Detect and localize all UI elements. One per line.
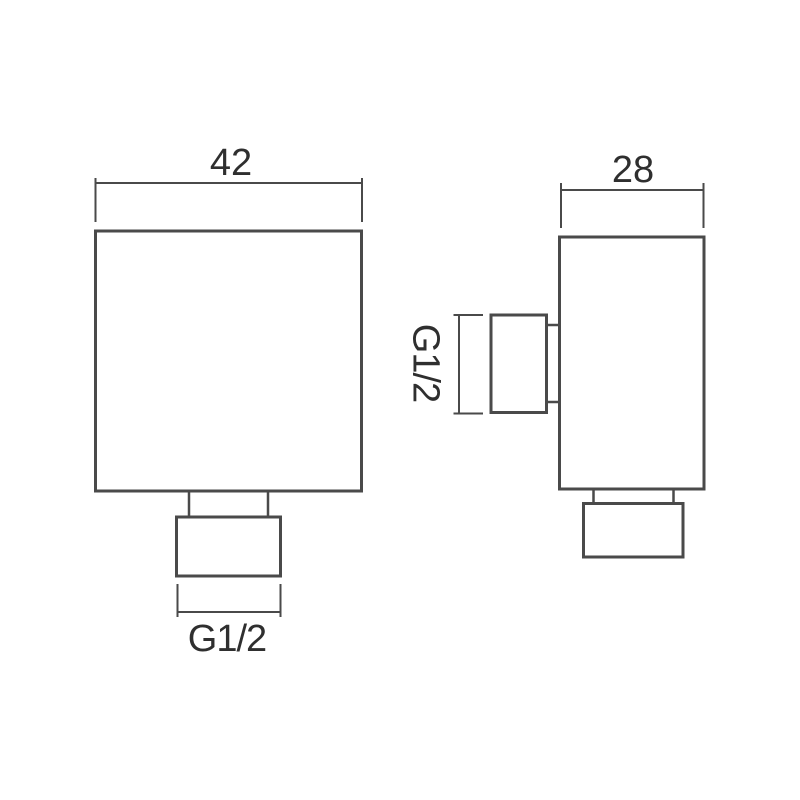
front-view-body xyxy=(96,231,362,491)
side-inlet-nut xyxy=(491,315,547,413)
side-depth-label: 28 xyxy=(612,149,654,191)
side-thread-dimension xyxy=(454,314,484,414)
front-width-label: 42 xyxy=(210,142,252,184)
front-bottom-thread-label: G1/2 xyxy=(188,618,266,660)
dimension-drawing: 42 G1/2 28 G1/2 xyxy=(0,0,800,800)
technical-drawing-canvas: 42 G1/2 28 G1/2 xyxy=(0,0,800,800)
side-outlet-neck xyxy=(594,489,674,504)
front-width-dimension xyxy=(96,178,363,222)
front-bottom-thread-dimension xyxy=(178,584,281,617)
front-outlet-neck xyxy=(189,491,268,517)
side-view-body xyxy=(560,237,705,489)
side-outlet-nut xyxy=(584,504,684,558)
side-inlet-neck xyxy=(547,325,561,402)
side-thread-label: G1/2 xyxy=(405,324,447,402)
front-outlet-nut xyxy=(177,517,281,576)
